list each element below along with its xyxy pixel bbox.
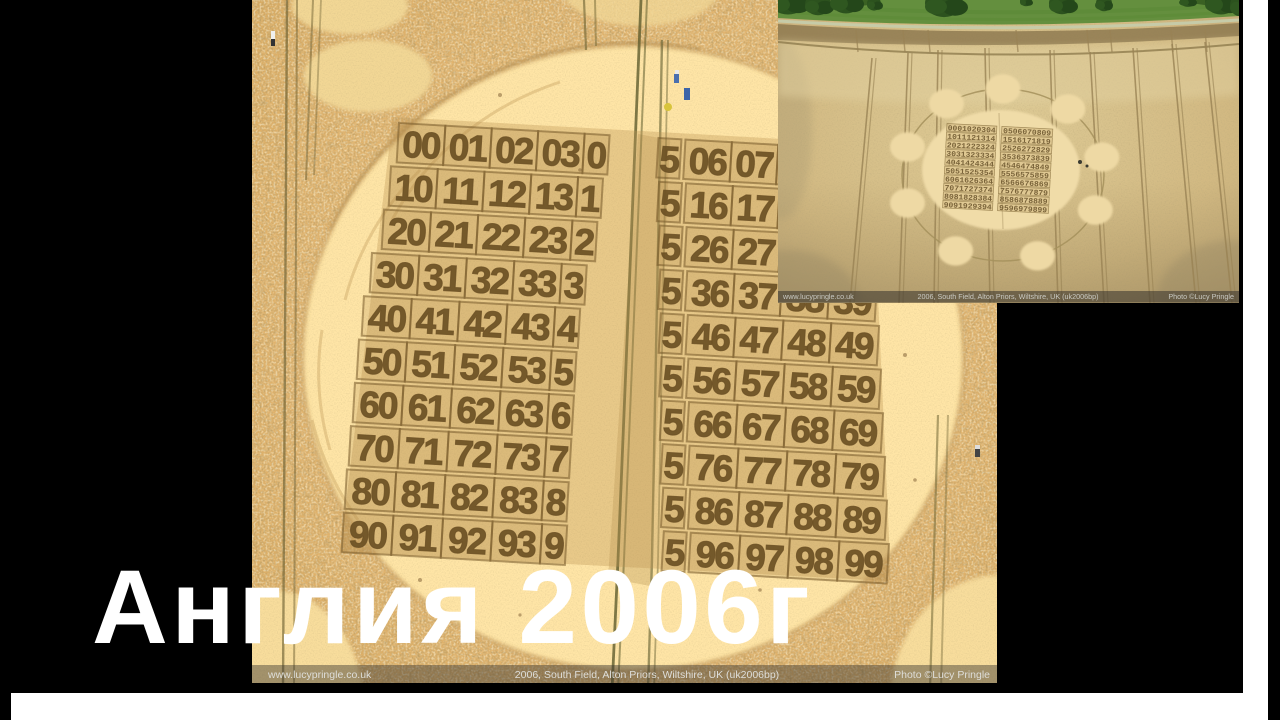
svg-text:60: 60 [358, 384, 399, 427]
svg-text:21: 21 [434, 213, 475, 256]
svg-text:50: 50 [362, 340, 403, 383]
svg-text:51: 51 [410, 343, 451, 386]
svg-text:78: 78 [791, 452, 832, 495]
svg-text:56: 56 [692, 359, 733, 402]
svg-text:06: 06 [688, 140, 729, 183]
svg-text:Photo ©Lucy Pringle: Photo ©Lucy Pringle [1168, 292, 1234, 301]
svg-text:67: 67 [741, 406, 781, 449]
svg-text:68: 68 [789, 408, 830, 451]
svg-text:10: 10 [393, 167, 434, 210]
svg-text:87: 87 [743, 493, 783, 536]
svg-text:47: 47 [739, 318, 779, 361]
svg-text:70: 70 [354, 427, 395, 470]
svg-text:99: 99 [843, 542, 884, 585]
svg-text:62: 62 [455, 389, 496, 432]
svg-text:36: 36 [690, 272, 731, 315]
svg-text:63: 63 [504, 392, 545, 435]
svg-text:88: 88 [792, 496, 833, 539]
svg-text:48: 48 [786, 321, 827, 364]
svg-text:32: 32 [470, 259, 511, 302]
svg-text:58: 58 [788, 365, 829, 408]
svg-text:33: 33 [517, 262, 558, 305]
svg-text:49: 49 [834, 324, 875, 367]
svg-text:www.lucypringle.co.uk: www.lucypringle.co.uk [267, 669, 372, 681]
svg-text:Photo ©Lucy Pringle: Photo ©Lucy Pringle [894, 669, 990, 681]
svg-text:86: 86 [694, 490, 735, 533]
svg-text:27: 27 [736, 231, 776, 274]
svg-text:11: 11 [441, 170, 480, 213]
svg-text:69: 69 [838, 411, 879, 454]
svg-text:12: 12 [487, 172, 528, 215]
svg-text:13: 13 [534, 175, 575, 218]
svg-text:2006, South Field, Alton Prior: 2006, South Field, Alton Priors, Wiltshi… [515, 669, 779, 681]
svg-text:00: 00 [401, 124, 442, 167]
svg-text:41: 41 [415, 300, 456, 343]
svg-text:61: 61 [407, 386, 448, 429]
svg-text:2006, South Field, Alton Prior: 2006, South Field, Alton Priors, Wiltshi… [918, 292, 1099, 301]
svg-text:20: 20 [387, 210, 428, 253]
svg-text:73: 73 [501, 435, 542, 478]
svg-text:7: 7 [547, 438, 568, 480]
svg-text:07: 07 [734, 143, 774, 186]
svg-text:37: 37 [737, 275, 777, 318]
svg-text:83: 83 [498, 479, 539, 522]
svg-text:www.lucypringle.co.uk: www.lucypringle.co.uk [782, 292, 854, 301]
svg-text:43: 43 [510, 305, 551, 348]
svg-text:26: 26 [689, 228, 730, 271]
svg-text:79: 79 [840, 455, 881, 498]
svg-text:76: 76 [693, 446, 734, 489]
svg-text:16: 16 [688, 184, 729, 227]
svg-text:71: 71 [403, 430, 444, 473]
svg-text:42: 42 [463, 303, 504, 346]
svg-text:81: 81 [400, 473, 441, 516]
svg-text:23: 23 [528, 219, 569, 262]
svg-text:89: 89 [841, 499, 882, 542]
svg-text:72: 72 [452, 433, 493, 476]
svg-text:52: 52 [458, 346, 499, 389]
svg-text:01: 01 [448, 126, 489, 169]
svg-text:66: 66 [692, 403, 733, 446]
svg-text:03: 03 [541, 132, 582, 175]
svg-text:77: 77 [742, 449, 782, 492]
svg-text:40: 40 [367, 297, 408, 340]
svg-text:57: 57 [740, 362, 780, 405]
svg-text:59: 59 [836, 368, 877, 411]
svg-text:82: 82 [449, 476, 490, 519]
svg-text:17: 17 [735, 187, 775, 230]
svg-text:80: 80 [351, 470, 392, 513]
svg-text:30: 30 [375, 254, 416, 297]
svg-text:46: 46 [691, 316, 732, 359]
svg-text:31: 31 [422, 256, 463, 299]
svg-text:22: 22 [481, 216, 522, 259]
svg-text:02: 02 [494, 129, 535, 172]
svg-text:Англия 2006г: Англия 2006г [92, 549, 813, 666]
svg-text:53: 53 [507, 349, 548, 392]
